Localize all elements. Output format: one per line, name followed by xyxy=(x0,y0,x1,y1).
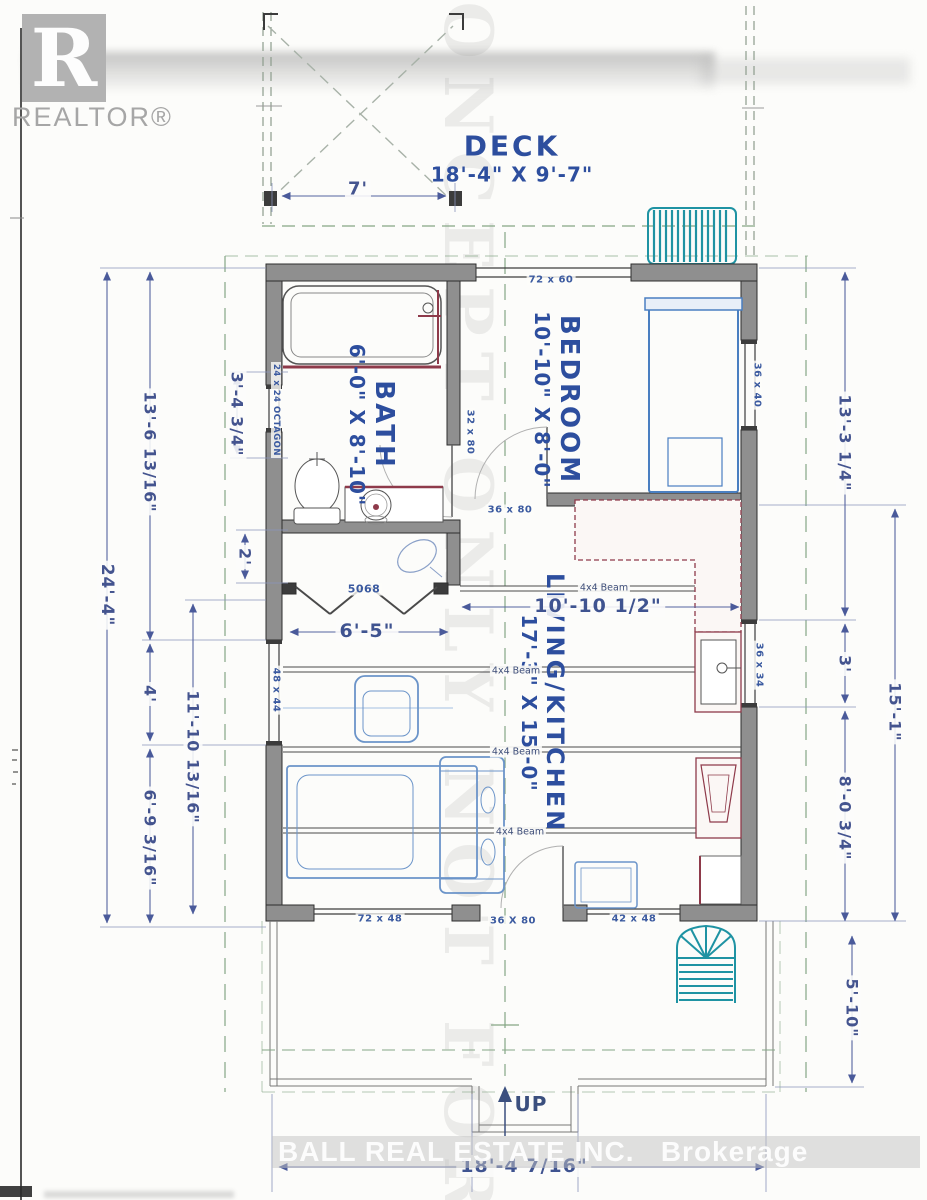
dim-right-lower: 8'-0 3/4" xyxy=(836,773,855,864)
extension-lines xyxy=(100,183,906,1192)
realtor-logo-letter: R xyxy=(22,14,106,102)
living-furniture xyxy=(287,676,637,908)
dim-right-small: 3' xyxy=(836,652,855,676)
bedroom-door-size-label: 36 x 80 xyxy=(486,505,535,516)
kitchen-counters xyxy=(575,500,741,904)
dim-left-lower: 6'-9 3/16" xyxy=(141,787,160,890)
deck-label: DECK 18'-4" X 9'-7" xyxy=(431,130,594,187)
front-window-right-size-label: 42 x 48 xyxy=(610,914,659,925)
beam-label-2: 4x4 Beam xyxy=(490,666,542,677)
beam-label-4: 4x4 Beam xyxy=(494,827,546,838)
living-window-size-label: 48 x 44 xyxy=(271,666,282,715)
entry-door-size-label: 36 X 80 xyxy=(488,916,538,927)
dim-left-mid: 4' xyxy=(141,682,160,706)
slider-size-label: 72 x 60 xyxy=(527,275,576,286)
bath-door-size-label: 32 x 80 xyxy=(465,408,476,457)
dim-right-tall: 15'-1" xyxy=(886,679,905,744)
dim-deck-width: 7' xyxy=(345,179,371,200)
front-window-left-size-label: 72 x 48 xyxy=(356,914,405,925)
dim-overall-height: 24'-4" xyxy=(97,561,117,630)
dim-closet-width: 6'-5" xyxy=(335,620,398,642)
bedroom-furniture xyxy=(645,298,742,492)
brokerage-watermark: BALL REAL ESTATE INC. Brokerage xyxy=(272,1136,920,1168)
dim-left-upper: 13'-6 13/16" xyxy=(141,388,160,515)
beam-label-3: 4x4 Beam xyxy=(490,747,542,758)
dim-living-left: 11'-10 13/16" xyxy=(184,687,203,826)
dim-living-width: 10'-10 1/2" xyxy=(530,595,665,617)
dim-right-upper: 13'-3 1/4" xyxy=(836,392,855,495)
dim-closet-depth: 2' xyxy=(236,545,255,569)
bath-label: BATH 6'-0" X 8'-10" xyxy=(345,344,399,507)
realtor-logo-text: REALTOR® xyxy=(12,102,173,133)
realtor-logo: R xyxy=(22,14,106,102)
bedroom-name: BEDROOM xyxy=(554,311,584,489)
dim-porch-height: 5'-10" xyxy=(843,975,862,1040)
stairs-up-label: UP xyxy=(515,1092,548,1116)
bedroom-dims: 10'-10" X 8'-0" xyxy=(530,311,554,489)
octagon-window-size-label: 24 x 24 OCTAGON xyxy=(271,362,281,458)
interior-stairs xyxy=(677,926,735,1003)
dim-bath-window: 3'-4 3/4" xyxy=(228,369,247,460)
bath-name: BATH xyxy=(369,344,399,507)
bath-dims: 6'-0" X 8'-10" xyxy=(345,344,369,507)
bedroom-label: BEDROOM 10'-10" X 8'-0" xyxy=(530,311,584,489)
porch-outline xyxy=(262,921,780,1092)
beam-label-1: 4x4 Beam xyxy=(578,583,630,594)
closet-door-size-label: 5068 xyxy=(346,583,383,596)
scan-margin-line xyxy=(10,28,24,1200)
deck-dims: 18'-4" X 9'-7" xyxy=(431,163,594,187)
bedroom-window-size-label: 36 x 40 xyxy=(752,361,763,410)
floorplan-page: CONCEPT ONLY NOT FOR xyxy=(0,0,927,1200)
deck-name: DECK xyxy=(431,130,594,163)
kitchen-window-size-label: 36 x 34 xyxy=(754,641,765,690)
